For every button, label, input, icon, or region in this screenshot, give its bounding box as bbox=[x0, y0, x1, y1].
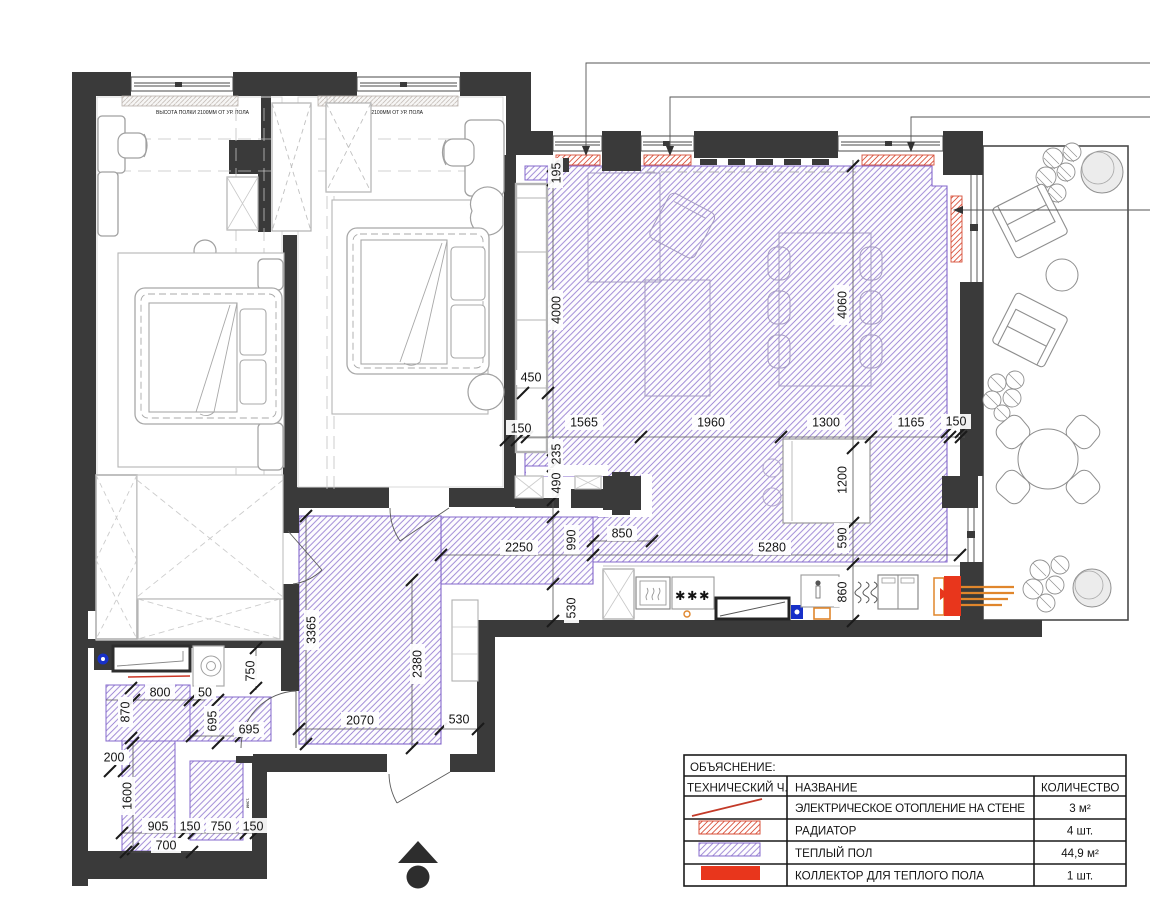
svg-text:870: 870 bbox=[118, 702, 132, 723]
svg-text:990: 990 bbox=[564, 530, 578, 551]
svg-text:750: 750 bbox=[211, 819, 232, 833]
svg-text:2380: 2380 bbox=[410, 650, 424, 678]
svg-text:3365: 3365 bbox=[304, 616, 318, 644]
svg-text:150: 150 bbox=[511, 421, 532, 435]
svg-text:1300: 1300 bbox=[812, 415, 840, 429]
svg-text:2070: 2070 bbox=[346, 713, 374, 727]
svg-text:450: 450 bbox=[521, 370, 542, 384]
svg-text:490: 490 bbox=[549, 473, 563, 494]
svg-text:КОЛИЧЕСТВО: КОЛИЧЕСТВО bbox=[1041, 782, 1119, 795]
svg-text:5280: 5280 bbox=[758, 540, 786, 554]
svg-text:1200: 1200 bbox=[835, 466, 849, 494]
svg-text:4060: 4060 bbox=[835, 291, 849, 319]
svg-text:700: 700 bbox=[156, 838, 177, 852]
svg-text:НАЗВАНИЕ: НАЗВАНИЕ bbox=[795, 782, 858, 795]
svg-text:1960: 1960 bbox=[697, 415, 725, 429]
svg-text:ОБЪЯСНЕНИЕ:: ОБЪЯСНЕНИЕ: bbox=[690, 761, 776, 774]
svg-text:4 шт.: 4 шт. bbox=[1067, 825, 1093, 838]
svg-text:850: 850 bbox=[612, 526, 633, 540]
svg-text:150: 150 bbox=[946, 414, 967, 428]
svg-text:ТЕХНИЧЕСКИЙ Ч.: ТЕХНИЧЕСКИЙ Ч. bbox=[687, 782, 788, 795]
svg-text:1165: 1165 bbox=[898, 415, 925, 429]
svg-text:590: 590 bbox=[835, 528, 849, 549]
svg-text:235: 235 bbox=[549, 444, 563, 465]
svg-text:1 шт.: 1 шт. bbox=[1067, 870, 1093, 883]
svg-text:905: 905 bbox=[148, 819, 169, 833]
svg-text:1565: 1565 bbox=[570, 415, 598, 429]
svg-text:530: 530 bbox=[564, 598, 578, 619]
svg-text:530: 530 bbox=[449, 712, 470, 726]
svg-text:КОЛЛЕКТОР ДЛЯ ТЕПЛОГО ПОЛА: КОЛЛЕКТОР ДЛЯ ТЕПЛОГО ПОЛА bbox=[795, 870, 984, 883]
svg-text:4000: 4000 bbox=[549, 296, 563, 324]
svg-text:800: 800 bbox=[150, 685, 171, 699]
svg-text:ЭЛЕКТРИЧЕСКОЕ ОТОПЛЕНИЕ НА СТЕ: ЭЛЕКТРИЧЕСКОЕ ОТОПЛЕНИЕ НА СТЕНЕ bbox=[795, 802, 1025, 815]
svg-text:150: 150 bbox=[180, 819, 201, 833]
svg-text:инст.: инст. bbox=[245, 798, 250, 808]
svg-text:860: 860 bbox=[835, 582, 849, 603]
svg-text:✱✱✱: ✱✱✱ bbox=[675, 589, 711, 603]
svg-text:ТЕПЛЫЙ ПОЛ: ТЕПЛЫЙ ПОЛ bbox=[795, 847, 872, 860]
svg-text:50: 50 bbox=[198, 685, 212, 699]
svg-text:695: 695 bbox=[239, 722, 260, 736]
svg-text:ВЫСОТА ПОЛКИ 2100ММ ОТ УР. ПОЛ: ВЫСОТА ПОЛКИ 2100ММ ОТ УР. ПОЛА bbox=[156, 110, 250, 116]
svg-text:44,9 м²: 44,9 м² bbox=[1061, 847, 1099, 860]
svg-text:3 м²: 3 м² bbox=[1069, 802, 1091, 815]
svg-text:150: 150 bbox=[243, 819, 264, 833]
svg-text:200: 200 bbox=[104, 750, 125, 764]
svg-text:695: 695 bbox=[205, 711, 219, 732]
svg-text:2250: 2250 bbox=[505, 540, 533, 554]
svg-text:750: 750 bbox=[243, 661, 257, 682]
svg-text:195: 195 bbox=[549, 163, 563, 184]
svg-text:1600: 1600 bbox=[120, 782, 134, 810]
svg-text:РАДИАТОР: РАДИАТОР bbox=[795, 825, 857, 838]
